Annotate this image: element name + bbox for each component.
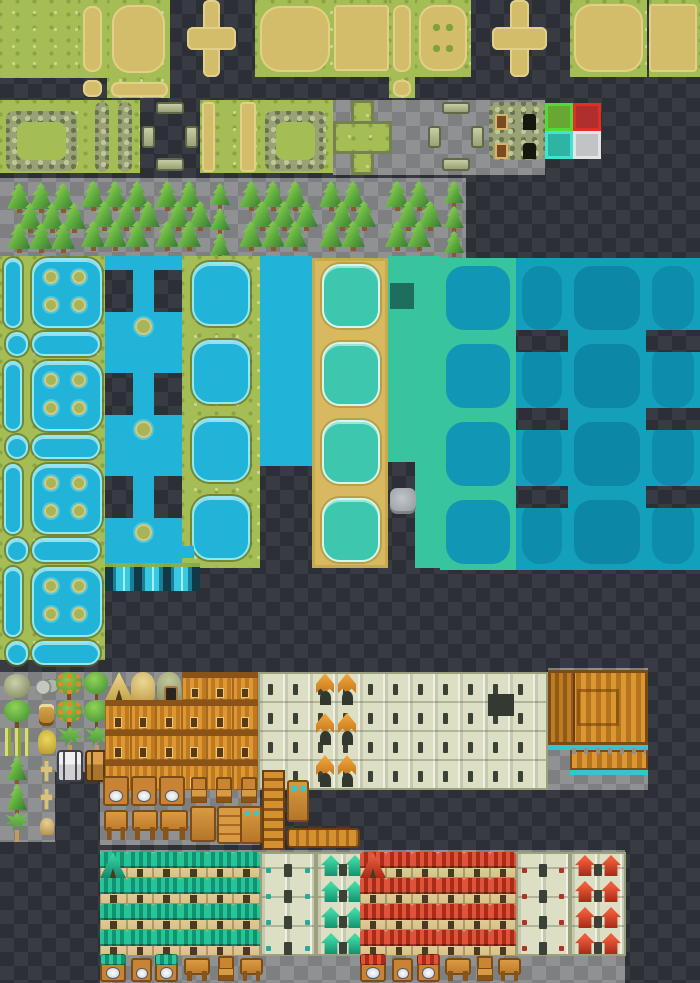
sea-column-2-sq3 (522, 500, 562, 564)
red-house-block-house (438, 852, 464, 878)
chair-2 (214, 777, 234, 803)
grass-pool-column-isle2 (44, 298, 58, 312)
stone-building-window (368, 684, 373, 695)
path-blob-dotted (419, 5, 467, 71)
round-tree-2 (4, 700, 30, 728)
teal-house-block-house (100, 930, 127, 956)
cabin-block-cell (131, 730, 157, 760)
stone-building (258, 672, 548, 790)
grass-pond-column-pond1 (192, 340, 250, 404)
red-house-block-house (438, 904, 464, 930)
red-house-block-house (464, 930, 490, 956)
sand-pond-column-pond0 (322, 264, 380, 328)
cabin-block-cell (131, 700, 157, 730)
red-house-block-house (464, 904, 490, 930)
stone-building-window (518, 684, 523, 695)
path-cross2-h (492, 27, 547, 50)
stone-building-window (443, 684, 448, 695)
sea-column-1-sq1 (446, 344, 510, 408)
crate-row-cell (182, 672, 207, 700)
stump (40, 818, 54, 835)
rocks (36, 679, 58, 694)
teal-house-block-house (233, 878, 260, 904)
grass-pool-column-circ (6, 332, 28, 356)
tree-cluster-6-pine (406, 221, 432, 251)
grass-pool-column-isle2 (44, 607, 58, 621)
grass-pool-column-vpill (4, 464, 22, 534)
sea-column-1-sq3 (446, 500, 510, 564)
teal-house-block-house (153, 904, 180, 930)
grass-pool-column-isle0 (44, 579, 58, 593)
tree-cluster-3-pine (176, 221, 202, 251)
cabin-block-cell (182, 730, 208, 760)
stone-building-window (293, 713, 298, 724)
water-cross-column-gapR (154, 270, 182, 312)
stone-building-window (493, 742, 498, 753)
sea-column-4-sq2 (652, 422, 694, 486)
stone-tower-1-slot (284, 942, 292, 955)
swatch-green (545, 103, 573, 131)
stone-tower-2-slot (539, 864, 547, 877)
well-3 (159, 776, 185, 806)
red-house-block-house (386, 852, 412, 878)
stone-building-window (443, 771, 448, 782)
tree-column-1-pine (209, 208, 231, 234)
fence-set-top (156, 102, 184, 114)
teal-roof-tower-slot (339, 890, 347, 902)
red-house-block-house (386, 878, 412, 904)
arch-door-5 (320, 773, 331, 787)
round-tree (84, 672, 108, 700)
red-house-block-house (490, 904, 516, 930)
grass-pool-column-circ (6, 538, 28, 562)
red-roof-tower-slot (594, 916, 602, 928)
path-vertical-strip (83, 6, 102, 72)
stone-building-window (443, 742, 448, 753)
grass-pool-column-hpill (32, 332, 100, 356)
cabin-block-cell (105, 700, 131, 730)
chair-1 (189, 777, 209, 803)
fence-set-right (185, 126, 198, 148)
building-opening (488, 694, 514, 716)
table-6 (445, 958, 471, 981)
teal-well-3 (155, 955, 178, 982)
stone-tower-2-dotR (559, 894, 564, 899)
fence-set-left (142, 126, 155, 148)
teal-house-block-house (127, 878, 154, 904)
path-blob-large (260, 6, 330, 72)
sea-column-2-gap2 (516, 486, 568, 508)
teal-roof-tower-slot (339, 916, 347, 928)
sea-column-4-gap1 (646, 408, 700, 430)
water-cross-column-isle (135, 421, 152, 438)
stone-tower-1-dotL (266, 868, 271, 873)
teal-well-2 (131, 958, 152, 982)
path-fill (334, 5, 389, 71)
sea-column-3-sq3 (574, 500, 640, 564)
red-house-block-house (386, 930, 412, 956)
stone-tower-1-dotR (305, 920, 310, 925)
apple-tree (56, 672, 82, 700)
table-4 (184, 958, 210, 981)
table-7 (498, 958, 521, 981)
waterfall-strip (105, 563, 200, 591)
hedge-ring (6, 111, 77, 171)
palm-tall (4, 812, 30, 842)
path-edge-right (240, 102, 256, 172)
seaweed-tile (390, 283, 414, 309)
stool-1 (216, 956, 236, 981)
water-cross-column-gapL (105, 373, 133, 415)
grass-pool-column-hpill (32, 538, 100, 562)
stone-tower-2-slot (539, 916, 547, 929)
stone-building-window (468, 713, 473, 724)
straw-mound (131, 672, 155, 700)
stone-building-window (418, 771, 423, 782)
path-fill2 (649, 4, 697, 72)
sea-column-2-sq1 (522, 344, 562, 408)
stone-tower-2-dotR (559, 946, 564, 951)
wood-beam (287, 828, 360, 848)
hedge-bar-v1 (95, 102, 109, 172)
crate-row-cell (207, 672, 232, 700)
table-2 (132, 810, 158, 840)
teal-house-block-house (153, 930, 180, 956)
stone-building-window (518, 713, 523, 724)
sea-column-1-sq0 (446, 266, 510, 330)
stone-tower-1-dotL (266, 920, 271, 925)
stone-tower-1-dotR (305, 946, 310, 951)
stone-building-window (518, 742, 523, 753)
red-house-block-house (360, 904, 386, 930)
well-2 (131, 776, 157, 806)
grass-pool-column-isle1 (72, 373, 86, 387)
stone-tower-2-dotL (522, 894, 527, 899)
hedge-doorways-door1 (495, 114, 508, 130)
water-inlet-2 (180, 546, 194, 558)
stone-building-window (518, 771, 523, 782)
red-well-1 (360, 955, 386, 982)
stone-building-window (293, 684, 298, 695)
grass-pool-column-isle1 (72, 476, 86, 490)
stone-tower-2-slot (539, 942, 547, 955)
teal-well-1 (100, 955, 126, 982)
stone-tower-1-dotR (305, 868, 310, 873)
water-cross-column-gapL (105, 270, 133, 312)
sea-column-4-sq1 (652, 344, 694, 408)
teal-house-block-house (180, 878, 207, 904)
swatch-teal (545, 131, 573, 159)
sea-column-3-sq0 (574, 266, 640, 330)
sand-pond-column-pond3 (322, 498, 380, 562)
grass-pool-column-pond (32, 258, 102, 328)
sea-column-3-sq2 (574, 422, 640, 486)
stone-building-window (468, 742, 473, 753)
hay-hut (157, 672, 181, 700)
stone-building-window (268, 742, 273, 753)
grass-pond-column-pond3 (192, 496, 250, 560)
stone-building-window (493, 771, 498, 782)
stone-building-window (293, 742, 298, 753)
grass-pond-column-pond0 (192, 262, 250, 326)
red-house-block-house (360, 930, 386, 956)
red-roof-tower-slot (594, 890, 602, 902)
stool-2 (475, 956, 495, 981)
red-house-block-house (438, 930, 464, 956)
cabin-block-cell (182, 700, 208, 730)
teal-house-block-house (207, 930, 234, 956)
tree-cluster-1-pine (50, 223, 76, 253)
sign-panel (287, 780, 309, 822)
fence-set2-left (428, 126, 441, 148)
path-blob-wide (574, 4, 643, 72)
sea-column-4-gap0 (646, 330, 700, 352)
grass-pool-column-circ (6, 641, 28, 665)
swatch-white (573, 131, 601, 159)
open-water (260, 256, 312, 466)
teal-house-block-house (180, 904, 207, 930)
red-house-block-house (412, 878, 438, 904)
red-house-block-house (412, 904, 438, 930)
teal-house-block-house (100, 904, 127, 930)
stone-building-window (443, 713, 448, 724)
path-end-cap2 (393, 80, 411, 97)
tree-column-2-pine (443, 206, 465, 232)
fence-set2-right (471, 126, 484, 148)
bamboo (5, 728, 29, 756)
path-end-cap (83, 80, 102, 97)
bush-gray (4, 674, 30, 698)
stone-building-window (393, 684, 398, 695)
stone-tower-2-slot (539, 890, 547, 903)
stone-building-window (268, 684, 273, 695)
stone-tower-2-dotL (522, 946, 527, 951)
water-cross-column-gapR (154, 476, 182, 518)
cabin-block-cell (105, 730, 131, 760)
pine-small (6, 756, 28, 784)
grass-pool-column-isle3 (72, 607, 86, 621)
teal-house-block-house (127, 904, 154, 930)
teal-house-block-house (127, 852, 154, 878)
swatch-red (573, 103, 601, 131)
chair-3 (239, 777, 259, 803)
grass-pool-column-isle3 (72, 401, 86, 415)
red-house-block-house (490, 930, 516, 956)
grass-pool-column-circ (6, 435, 28, 459)
sand-pond-column-pond2 (322, 420, 380, 484)
tree-column-1-pine (209, 183, 231, 209)
sea-column-4-sq3 (652, 500, 694, 564)
tree-column-2-pine (443, 231, 465, 257)
teal-house-block-house (207, 904, 234, 930)
grass-pool-column-hpill (32, 435, 100, 459)
well-1 (103, 776, 129, 806)
sea-column-2-sq0 (522, 266, 562, 330)
sea-column-2-gap0 (516, 330, 568, 352)
grass-pool-column-isle0 (44, 270, 58, 284)
cabin-block-cell (233, 730, 259, 760)
stone-building-window (418, 742, 423, 753)
grass-pond-column-pond2 (192, 418, 250, 482)
fence-set2-top (442, 102, 470, 114)
grass-pool-column-vpill (4, 258, 22, 328)
stone-building-window (268, 713, 273, 724)
tree-cluster-2-pine (124, 221, 150, 251)
red-house-block-house (360, 878, 386, 904)
sea-column-2-gap1 (516, 408, 568, 430)
stone-building-window (393, 742, 398, 753)
stone-tower-1-slot (284, 916, 292, 929)
water-cross-column-isle (135, 318, 152, 335)
red-house-block-house (490, 852, 516, 878)
red-house-block-house (490, 878, 516, 904)
water-cross-column-gapR (154, 373, 182, 415)
stone-tower-1-dotR (305, 894, 310, 899)
pine-small-2 (6, 784, 28, 814)
teal-house-block-house (180, 852, 207, 878)
table-3 (160, 810, 188, 840)
path-blob (112, 5, 165, 73)
teal-house-block-house (233, 904, 260, 930)
stone-building-window (393, 713, 398, 724)
teal-house-block-house (153, 852, 180, 878)
stone-tower-2-dotL (522, 868, 527, 873)
stone-tower-2-dotL (522, 920, 527, 925)
cabin-block-cell (207, 730, 233, 760)
grass-pool-column-isle3 (72, 298, 86, 312)
grass-pool-column-isle2 (44, 401, 58, 415)
teal-house-block-house (233, 930, 260, 956)
teal-house-block-house (127, 930, 154, 956)
sand-pond-column-pond1 (322, 342, 380, 406)
wood-ladder (262, 770, 285, 850)
cabin-block-cell (156, 700, 182, 730)
teal-house-block-house (207, 852, 234, 878)
grass-pool-column-isle1 (72, 270, 86, 284)
water-inlet-1 (132, 545, 158, 563)
path-vertical-strip2 (393, 5, 411, 72)
sea-column-1-sq2 (446, 422, 510, 486)
red-house-block-house (412, 852, 438, 878)
red-house-block-house (464, 878, 490, 904)
water-line-2 (570, 770, 648, 775)
barrel (39, 704, 54, 726)
hedge-ring2 (265, 111, 326, 171)
table-1 (104, 810, 128, 840)
desk-1 (190, 806, 216, 842)
grass-tile (0, 0, 78, 78)
stone-tower-1-dotL (266, 894, 271, 899)
red-well-3 (417, 955, 440, 982)
teal-house-block-house (207, 878, 234, 904)
stone-building-window (468, 684, 473, 695)
tileset-spritesheet (0, 0, 700, 983)
fence-set2-bottom (442, 158, 470, 171)
cabin-block-cell (156, 730, 182, 760)
grass-pool-column-isle1 (72, 579, 86, 593)
stone-building-window (368, 771, 373, 782)
grass-pool-column-hpill (32, 641, 100, 665)
grass-pool-column-isle2 (44, 504, 58, 518)
path-horizontal-strip (111, 82, 168, 97)
apple-tree-2 (56, 700, 82, 728)
red-house-block-house (464, 852, 490, 878)
rock-tile (390, 488, 416, 514)
grass-pool-column-isle0 (44, 373, 58, 387)
hedge-cross-h (333, 121, 392, 154)
sea-column-4-gap2 (646, 486, 700, 508)
stone-tower-1-dotL (266, 946, 271, 951)
teal-house-block-house (180, 930, 207, 956)
red-roof-tower-slot (594, 942, 602, 954)
tree-cluster-4-pine (282, 221, 308, 251)
stone-building-window (368, 713, 373, 724)
corn-plant (38, 730, 56, 754)
table-5 (240, 958, 263, 981)
red-roof-tower-slot (594, 864, 602, 876)
cabin-block-cell (207, 700, 233, 730)
grass-pool-column-pond (32, 567, 102, 637)
grass-pool-column-pond (32, 361, 102, 431)
path-cross-h (187, 27, 236, 50)
hedge-bar-v2 (118, 102, 132, 172)
stone-building-window (368, 742, 373, 753)
teal-house-block-house (153, 878, 180, 904)
grass-pool-column-vpill (4, 361, 22, 431)
grass-pool-column-pond (32, 464, 102, 534)
stone-building-window (468, 771, 473, 782)
grass-pool-column-isle3 (72, 504, 86, 518)
hedge-doorways-hole2 (523, 143, 536, 159)
wood-platform (548, 670, 648, 745)
stone-tower-1-slot (284, 864, 292, 877)
red-house-block-house (412, 930, 438, 956)
red-house-block-house (386, 904, 412, 930)
red-house-block-house (438, 878, 464, 904)
stone-tower-1-slot (284, 890, 292, 903)
teal-roof-tower-slot (339, 864, 347, 876)
fence-set-bottom (156, 158, 184, 171)
stone-tower-2-dotR (559, 920, 564, 925)
wood-dock (570, 750, 648, 770)
crate-row-cell (233, 672, 258, 700)
stone-building-window (418, 684, 423, 695)
tree-column-2-pine (443, 181, 465, 207)
arch-door-4 (342, 731, 353, 745)
cabinet (240, 806, 262, 844)
stone-building-window (418, 713, 423, 724)
hedge-doorways-hole1 (523, 114, 536, 130)
arch-door-3 (320, 731, 331, 745)
teal-house-block-house (100, 878, 127, 904)
stone-tower-2-dotR (559, 868, 564, 873)
sea-column-4-sq0 (652, 266, 694, 330)
stone-building-window (393, 771, 398, 782)
tree-cluster-5-pine (340, 221, 366, 251)
arch-door-6 (342, 773, 353, 787)
teal-house-block-house (233, 852, 260, 878)
red-well-2 (392, 958, 413, 982)
sea-column-3-sq1 (574, 344, 640, 408)
water-cross-column-gapL (105, 476, 133, 518)
teal-roof-tower-slot (339, 942, 347, 954)
sea-column-2-sq2 (522, 422, 562, 486)
cabin-block-cell (233, 700, 259, 730)
hedge-doorways-door2 (495, 143, 508, 159)
path-edge-left (202, 102, 215, 172)
lagoon-strip (415, 462, 440, 568)
grass-pool-column-vpill (4, 567, 22, 637)
